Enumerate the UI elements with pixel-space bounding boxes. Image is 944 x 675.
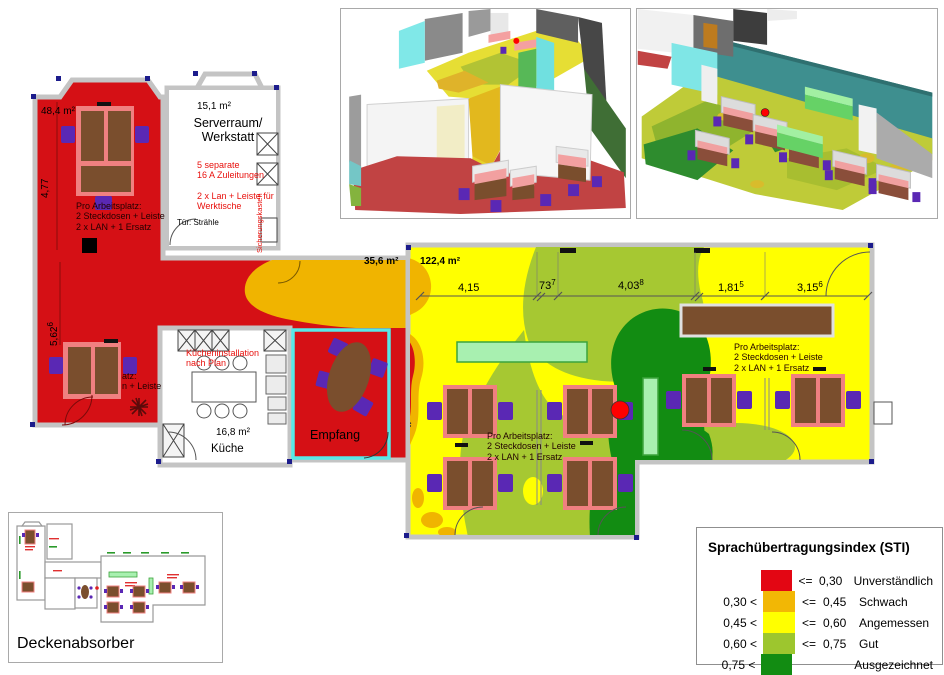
serverraum-name: Serverraum/Werkstatt (184, 116, 272, 145)
serverraum-power-note: 5 separate16 A Zuleitungen (197, 160, 264, 181)
dim-4-15: 4,15 (458, 282, 479, 295)
dim-1-81: 1,815 (718, 280, 744, 295)
view3d-before-render (341, 9, 628, 216)
workplace-note-right: Pro Arbeitsplatz:2 Steckdosen + Leiste2 … (734, 342, 823, 373)
legend-row: 0,30 < <= 0,45 Schwach (705, 591, 933, 612)
view3d-before (340, 8, 631, 219)
legend-row: 0,45 < <= 0,60 Angemessen (705, 612, 933, 633)
legend-title: Sprachübertragungsindex (STI) (708, 540, 910, 555)
workplace-note-partial: atz:n + Leiste (122, 371, 161, 392)
speaker-position-dot (611, 401, 629, 419)
thumbnail-caption: Deckenabsorber (17, 635, 134, 653)
floor-box (82, 238, 97, 253)
kueche-area-label: 16,8 m² (216, 427, 250, 439)
wall-closet (874, 402, 892, 424)
legend-swatch (763, 612, 795, 633)
legend-row: 0,75 < Ausgezeichnet (705, 654, 933, 675)
legend-swatch (761, 654, 792, 675)
sti-floorplan-canvas: 48,4 m² 4,77 5,626 15,1 m² Serverraum/We… (0, 0, 944, 675)
corridor-area-label: 35,6 m² (364, 256, 398, 268)
bigroom-area-label: 122,4 m² (420, 256, 460, 268)
legend-swatch (763, 591, 795, 612)
thumbnail-variant: Deckenabsorber (8, 512, 223, 663)
kitchen-install-note: Kücheninstallationnach Plan (186, 348, 259, 369)
kitchen-appliance (266, 355, 286, 424)
dim-3-15: 3,156 (797, 280, 823, 295)
view3d-after-render (637, 9, 935, 216)
legend-rows: <= 0,30 Unverständlich 0,30 < <= 0,45 Sc… (705, 570, 933, 675)
plant-icon (130, 398, 148, 416)
room-a-height-dim2: 5,626 (46, 322, 61, 346)
legend-swatch (763, 633, 795, 654)
ceiling-absorber-bar (457, 342, 587, 362)
kitchen-table (192, 372, 256, 402)
sideboard (681, 305, 833, 336)
workplace-note-room-a: Pro Arbeitsplatz:2 Steckdosen + Leiste2 … (76, 201, 165, 232)
empfang-label: Empfang (310, 428, 360, 442)
legend-row: <= 0,30 Unverständlich (705, 570, 933, 591)
ceiling-absorber-bar (643, 378, 658, 455)
view3d-after (636, 8, 938, 219)
serverraum-area-label: 15,1 m² (197, 101, 231, 113)
door-type-note: Tür: Strähle (177, 218, 219, 227)
workplace-note-open-office: Pro Arbeitsplatz:2 Steckdosen + Leiste2 … (487, 431, 576, 462)
legend-row: 0,60 < <= 0,75 Gut (705, 633, 933, 654)
dim-4-03: 4,038 (618, 278, 644, 293)
thumbnail-plan (9, 516, 220, 636)
room-a-area-label: 48,4 m² (41, 106, 75, 118)
legend-swatch (761, 570, 792, 591)
sti-legend: Sprachübertragungsindex (STI) <= 0,30 Un… (696, 527, 943, 665)
serverraum-fusebox-label: Sicherungskasten (256, 193, 265, 253)
speaker-position-dot (761, 109, 769, 117)
kueche-name-label: Küche (211, 443, 244, 456)
dim-73: 737 (539, 278, 556, 293)
room-a-height-dim: 4,77 (40, 179, 52, 198)
